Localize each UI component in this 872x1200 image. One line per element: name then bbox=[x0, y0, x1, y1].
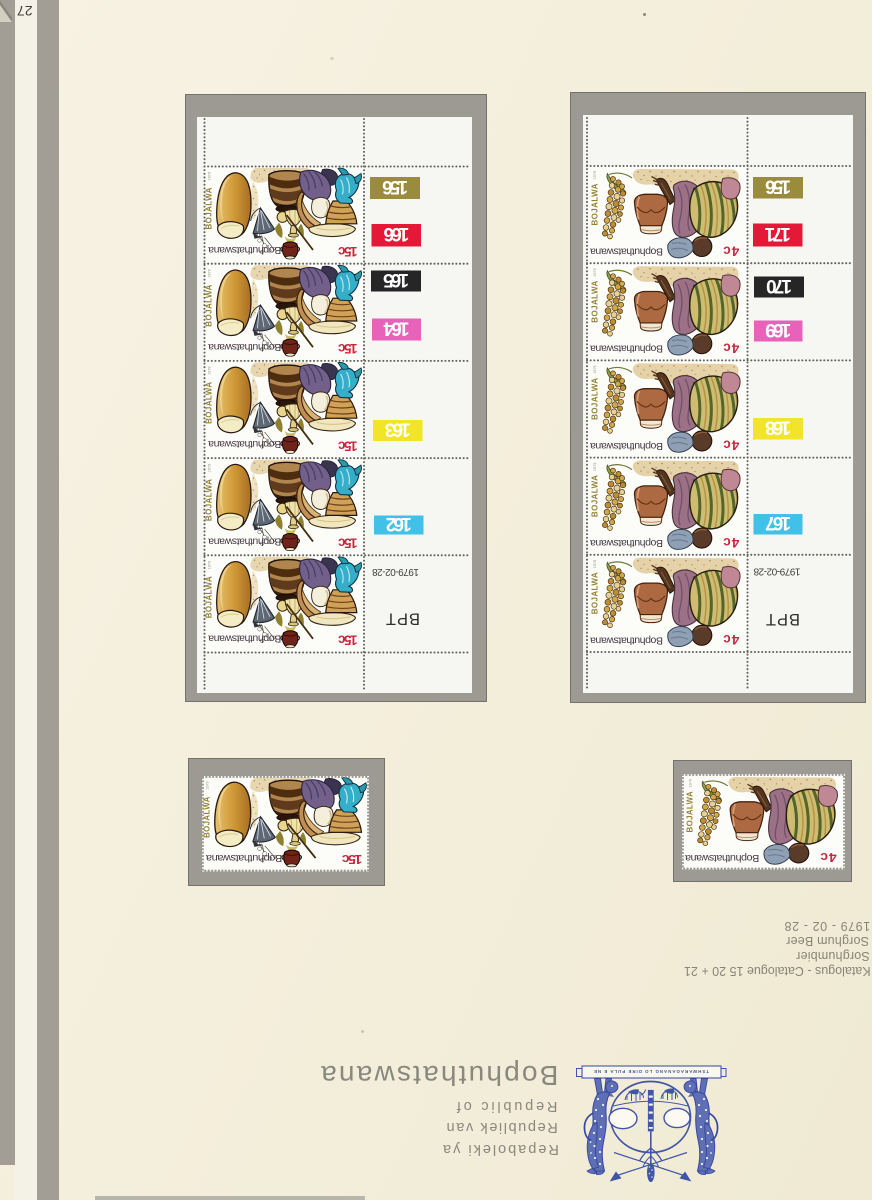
svg-text:156: 156 bbox=[765, 176, 791, 197]
svg-text:163: 163 bbox=[385, 418, 411, 439]
svg-text:162: 162 bbox=[386, 513, 412, 534]
svg-text:165: 165 bbox=[383, 269, 409, 290]
svg-text:170: 170 bbox=[766, 275, 792, 296]
svg-text:169: 169 bbox=[765, 319, 791, 340]
svg-text:TSHWARAGANANG LO DIRE PULA E N: TSHWARAGANANG LO DIRE PULA E NE bbox=[594, 1069, 709, 1074]
svg-text:156: 156 bbox=[382, 176, 408, 197]
svg-text:BPT: BPT bbox=[764, 610, 799, 628]
svg-text:BPT: BPT bbox=[385, 609, 420, 627]
svg-text:168: 168 bbox=[765, 417, 791, 438]
svg-text:164: 164 bbox=[383, 317, 409, 338]
svg-text:166: 166 bbox=[383, 223, 409, 244]
svg-text:171: 171 bbox=[764, 223, 790, 244]
svg-text:1979-02-28: 1979-02-28 bbox=[753, 565, 800, 576]
svg-text:1979-02-28: 1979-02-28 bbox=[372, 566, 419, 577]
svg-text:167: 167 bbox=[765, 512, 791, 533]
